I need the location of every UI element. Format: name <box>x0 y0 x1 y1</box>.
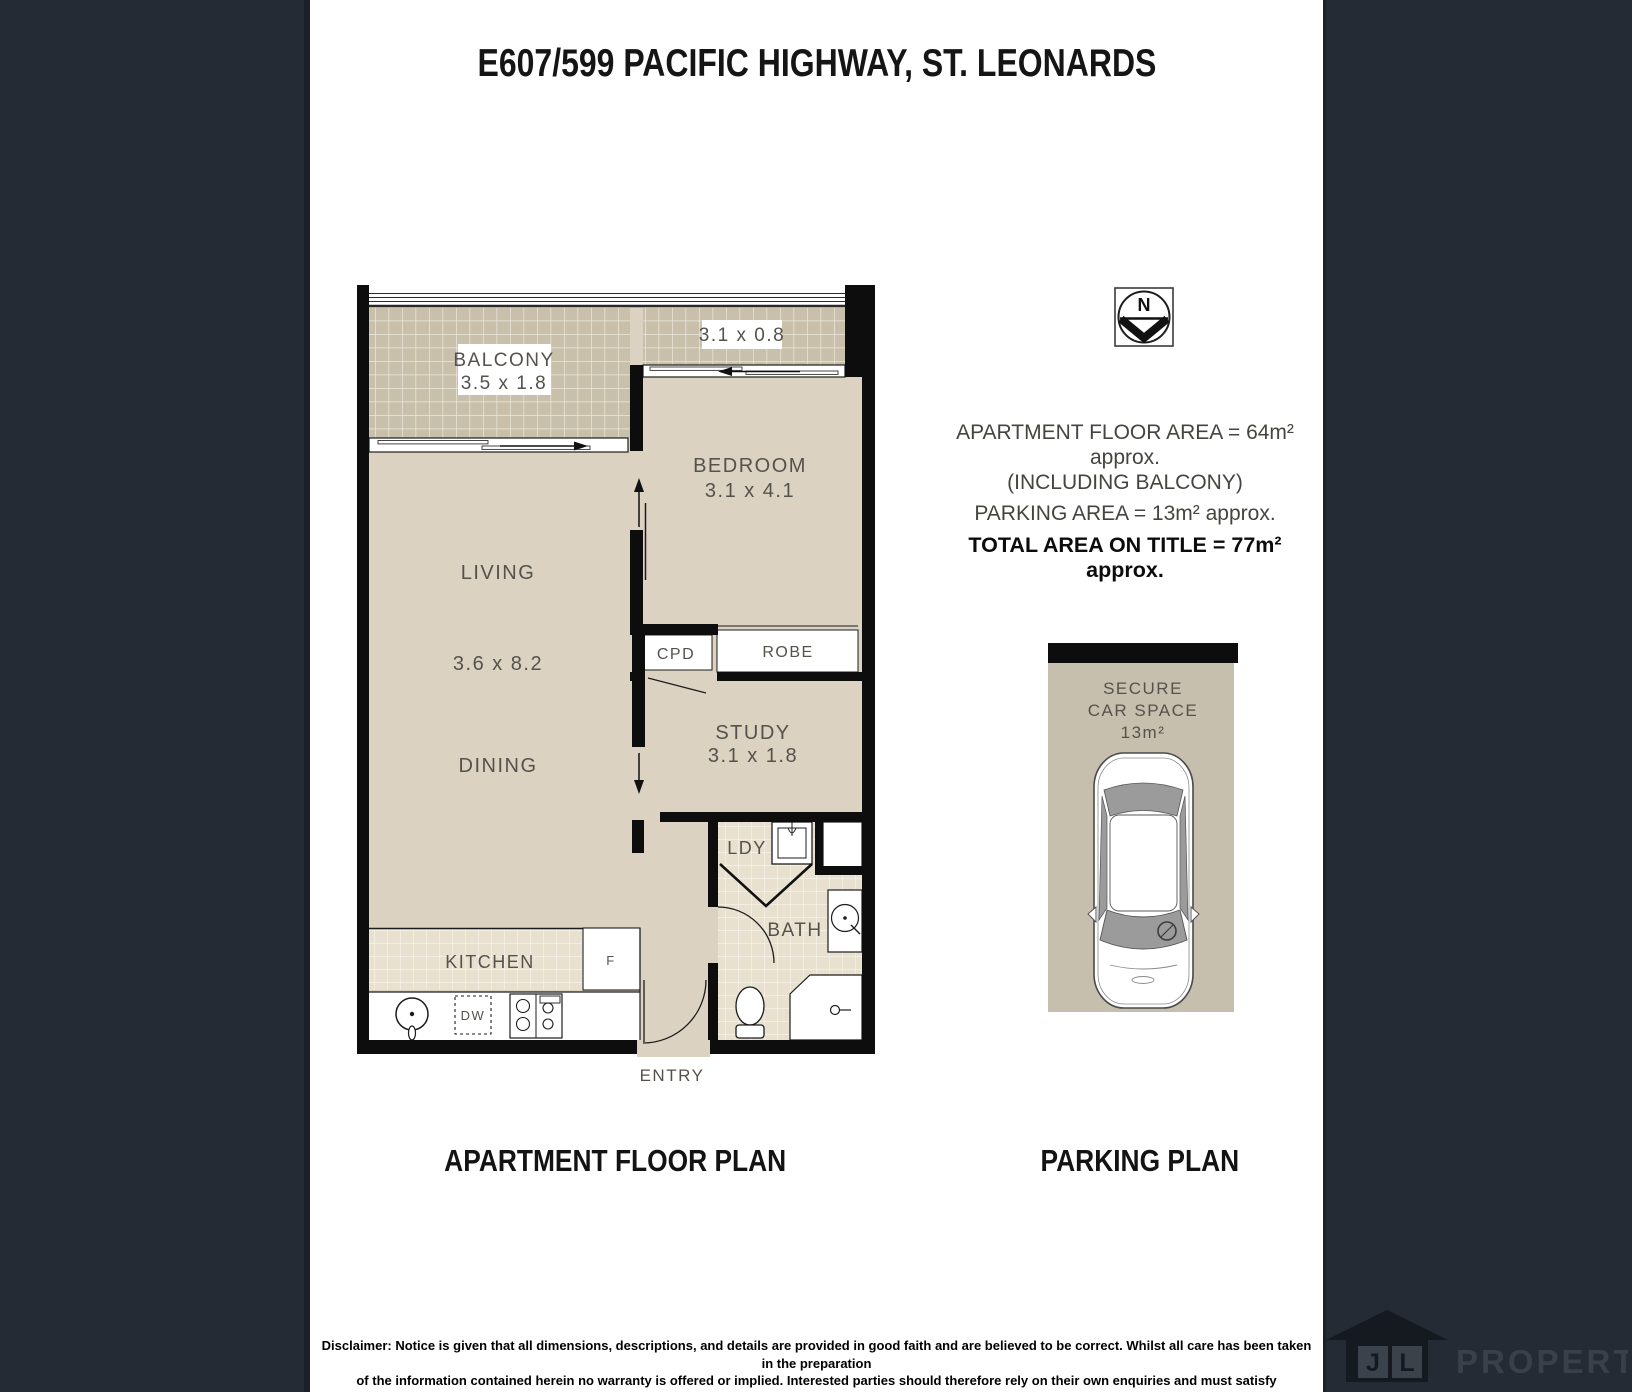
room-label-fridge: F <box>606 953 615 968</box>
room-label-study: STUDY <box>715 722 790 744</box>
compass-n-label: N <box>1138 295 1151 315</box>
room-label-ldy: LDY <box>727 838 767 858</box>
parking-wall <box>1048 643 1238 663</box>
page-title: E607/599 PACIFIC HIGHWAY, ST. LEONARDS <box>310 42 1323 86</box>
apartment-floor-plan: BALCONY 3.5 x 1.8 3.1 x 0.8 BEDROOM 3.1 … <box>348 280 878 1090</box>
car-space-label-3: 13m² <box>1121 723 1166 742</box>
left-dark-sidebar <box>0 0 310 1392</box>
disclaimer: Disclaimer: Notice is given that all dim… <box>320 1337 1313 1392</box>
logo-monogram-l: L <box>1399 1349 1414 1377</box>
toilet-icon <box>736 987 764 1038</box>
bedroom-sliding-door <box>643 365 845 377</box>
room-label-dining: DINING <box>459 755 538 777</box>
room-label-dw: DW <box>461 1008 486 1023</box>
room-label-robe: ROBE <box>762 644 813 661</box>
car-space-label-1: SECURE <box>1103 679 1183 698</box>
disclaimer-line-1: Disclaimer: Notice is given that all dim… <box>320 1337 1313 1372</box>
room-dims-living: 3.6 x 8.2 <box>453 653 543 675</box>
entry-label: ENTRY <box>640 1066 705 1085</box>
including-balcony-note: (INCLUDING BALCONY) <box>950 470 1300 495</box>
linen-cupboard <box>823 822 862 868</box>
living-sliding-door <box>369 438 628 452</box>
room-label-balcony: BALCONY <box>453 350 554 371</box>
washing-machine-icon <box>772 822 812 864</box>
jl-property-logo: J L PROPERTY <box>1326 1300 1628 1390</box>
room-label-kitchen: KITCHEN <box>445 952 535 972</box>
logo-brand-text: PROPERTY <box>1456 1343 1628 1380</box>
stove-icon <box>510 994 562 1038</box>
parking-plan-caption: PARKING PLAN <box>980 1143 1300 1179</box>
right-dark-sidebar <box>1323 0 1632 1392</box>
room-dims-study: 3.1 x 1.8 <box>708 745 798 767</box>
area-summary: APARTMENT FLOOR AREA = 64m² approx. (INC… <box>950 420 1300 583</box>
room-label-cpd: CPD <box>657 646 695 663</box>
bath-basin-icon <box>828 890 862 952</box>
logo-monogram-j: J <box>1366 1349 1380 1377</box>
room-label-living: LIVING <box>461 562 536 584</box>
apartment-floor-area: APARTMENT FLOOR AREA = 64m² approx. <box>950 420 1300 470</box>
room-label-bedroom: BEDROOM <box>693 455 807 477</box>
total-area-on-title: TOTAL AREA ON TITLE = 77m² approx. <box>950 533 1300 583</box>
car-space-label-2: CAR SPACE <box>1088 701 1199 720</box>
apartment-plan-caption: APARTMENT FLOOR PLAN <box>400 1143 830 1179</box>
north-compass-icon: N <box>1113 286 1175 348</box>
room-dims-bedroom: 3.1 x 4.1 <box>705 480 795 502</box>
car-top-view-icon <box>1088 753 1199 1008</box>
room-label-bath: BATH <box>767 920 822 941</box>
shower-icon <box>790 975 862 1040</box>
room-dims-balcony-side: 3.1 x 0.8 <box>699 325 785 346</box>
room-dims-balcony: 3.5 x 1.8 <box>461 373 547 394</box>
floorplan-document: E607/599 PACIFIC HIGHWAY, ST. LEONARDS N… <box>0 0 1632 1392</box>
parking-plan: SECURE CAR SPACE 13m² <box>1040 618 1240 1018</box>
balcony-railing <box>369 294 845 307</box>
disclaimer-line-2: of the information contained herein no w… <box>320 1372 1313 1392</box>
parking-area: PARKING AREA = 13m² approx. <box>950 501 1300 526</box>
